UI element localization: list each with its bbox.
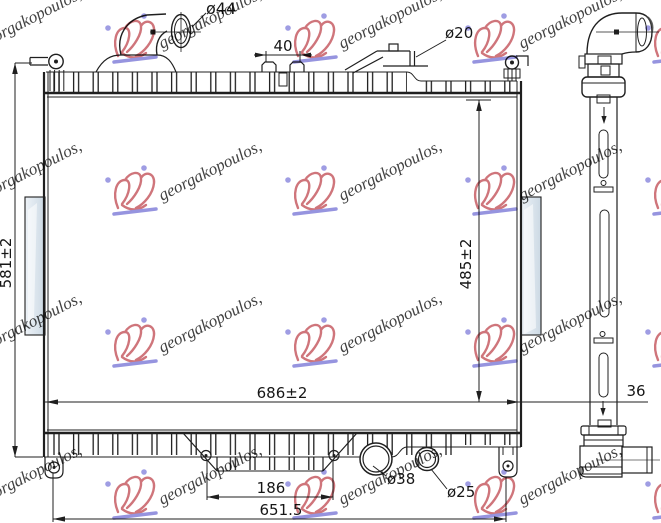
watermark-logo xyxy=(475,173,514,210)
watermark-underline xyxy=(294,209,336,214)
bottom-tank xyxy=(43,430,522,478)
watermark-logo xyxy=(295,477,334,514)
watermark-text: georgakopoulos, xyxy=(0,136,85,204)
watermark-underline xyxy=(114,513,156,518)
watermark-logo xyxy=(115,21,154,58)
dim-core-height: 485±2 xyxy=(457,239,475,290)
watermark-text: georgakopoulos, xyxy=(155,288,264,356)
watermark: georgakopoulos, xyxy=(465,136,624,214)
watermark-text: georgakopoulos, xyxy=(335,0,444,53)
filler-tabs xyxy=(262,62,304,72)
watermark: georgakopoulos, xyxy=(105,136,264,214)
watermark-logo xyxy=(295,21,334,58)
dim-bottom-bracket-spacing: 186 xyxy=(257,479,286,497)
side-bracket-right xyxy=(521,197,541,335)
watermark-logo xyxy=(295,173,334,210)
watermark: georgakopoulos, xyxy=(0,0,85,62)
watermark-logo xyxy=(655,325,661,362)
side-view-top-bracket xyxy=(579,54,622,77)
watermark-text: georgakopoulos, xyxy=(0,0,85,53)
watermark-underline xyxy=(114,361,156,366)
watermark-underline xyxy=(654,209,661,214)
watermark-logo xyxy=(295,325,334,362)
watermark-logo xyxy=(475,325,514,362)
watermark: georgakopoulos, xyxy=(0,440,85,518)
watermark-underline xyxy=(474,513,516,518)
watermark: georgakopoulos, xyxy=(285,288,444,366)
small-pipe xyxy=(345,44,428,73)
watermark-text: georgakopoulos, xyxy=(155,0,264,53)
watermark-logo xyxy=(655,173,661,210)
side-view xyxy=(579,13,660,477)
watermark-logo xyxy=(115,325,154,362)
watermark-underline xyxy=(294,361,336,366)
top-tank-ribs xyxy=(48,72,407,93)
watermark: georgakopoulos, xyxy=(645,136,661,214)
watermark: georgakopoulos, xyxy=(465,288,624,366)
watermark: georgakopoulos, xyxy=(285,0,444,62)
dim-filler-tab-spacing: 40 xyxy=(273,37,292,55)
watermark-underline xyxy=(654,57,661,62)
dim-core-thickness: 36 xyxy=(626,382,645,400)
watermark-logo xyxy=(655,21,661,58)
watermark-underline xyxy=(474,57,516,62)
watermark-underline xyxy=(654,361,661,366)
watermark-underline xyxy=(114,57,156,62)
watermark-underline xyxy=(654,513,661,518)
watermark: georgakopoulos, xyxy=(645,288,661,366)
watermark-logo xyxy=(475,477,514,514)
body-slot-3 xyxy=(599,353,608,397)
dim-outlet-diameter: ø25 xyxy=(447,483,475,501)
mounting-pin-left xyxy=(30,54,64,91)
dim-overall-width: 686±2 xyxy=(257,384,308,402)
watermark: georgakopoulos, xyxy=(465,440,624,518)
watermark-underline xyxy=(114,209,156,214)
watermark-underline xyxy=(474,361,516,366)
watermark-logo xyxy=(475,21,514,58)
watermark: georgakopoulos, xyxy=(645,440,661,518)
watermark: georgakopoulos, xyxy=(105,0,264,62)
watermark-text: georgakopoulos, xyxy=(155,136,264,204)
watermark-text: georgakopoulos, xyxy=(335,136,444,204)
watermark: georgakopoulos, xyxy=(465,0,624,62)
watermark-logo xyxy=(655,477,661,514)
watermark-underline xyxy=(474,209,516,214)
watermark-text: georgakopoulos, xyxy=(0,440,85,508)
watermark-text: georgakopoulos, xyxy=(335,288,444,356)
watermark: georgakopoulos, xyxy=(285,136,444,214)
side-view-elbow xyxy=(587,13,659,54)
radiator-technical-drawing: georgakopoulos, xyxy=(0,0,661,523)
dim-overall-height: 581±2 xyxy=(0,238,15,289)
watermark-logo xyxy=(115,477,154,514)
side-view-top-tank xyxy=(582,77,625,97)
watermark: georgakopoulos, xyxy=(105,288,264,366)
watermark-text: georgakopoulos, xyxy=(515,0,624,53)
watermark-logo xyxy=(115,173,154,210)
